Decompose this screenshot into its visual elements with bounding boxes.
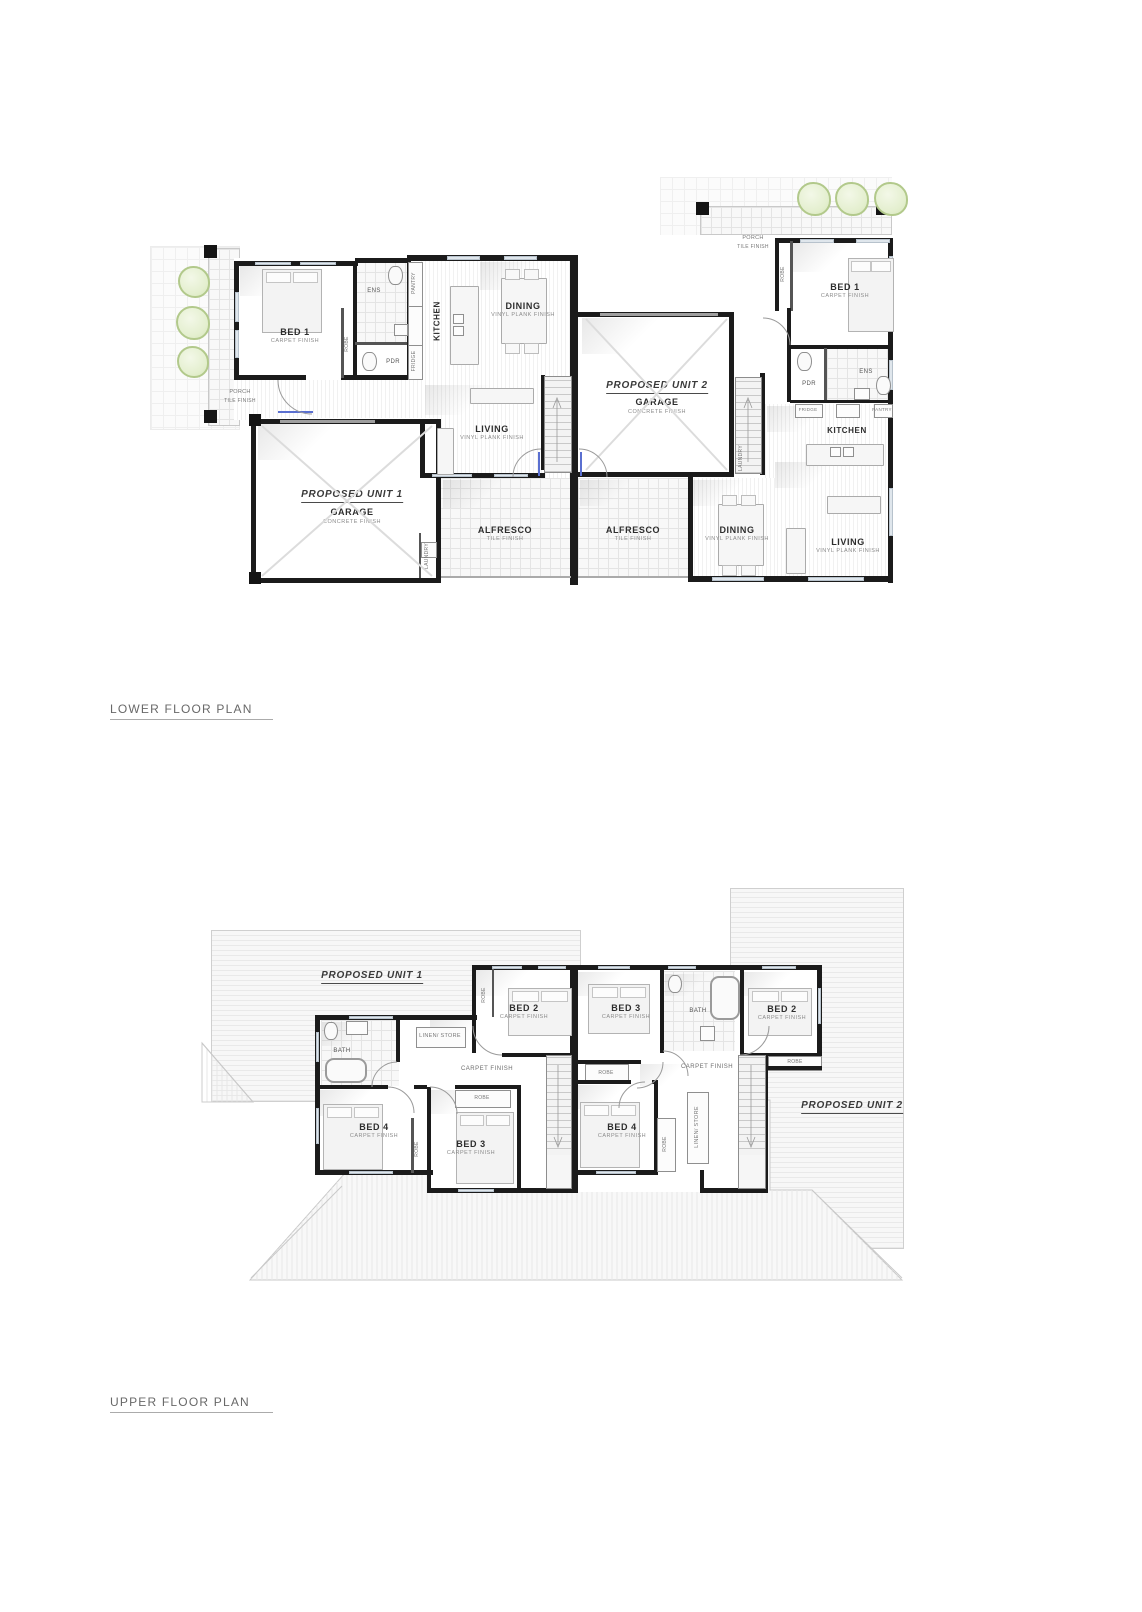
- window-marker: [349, 1171, 393, 1174]
- window-marker: [538, 966, 566, 969]
- robe-label-u1-bed4: ROBE: [414, 1141, 420, 1156]
- basin-icon: [700, 1026, 715, 1041]
- wall: [396, 1018, 400, 1062]
- window-marker: [316, 1032, 319, 1062]
- wall: [660, 969, 664, 1053]
- toilet-icon: [324, 1022, 338, 1040]
- wall: [472, 1017, 476, 1053]
- robe-label-u2-bed4: ROBE: [662, 1136, 668, 1151]
- wall: [700, 1170, 704, 1192]
- stairs: [738, 1055, 766, 1157]
- window-marker: [668, 966, 696, 969]
- upper-plan-title: UPPER FLOOR PLAN: [110, 1395, 250, 1409]
- wall: [472, 965, 476, 1020]
- wall: [318, 1085, 388, 1089]
- window-marker: [458, 1189, 494, 1192]
- finish-label-bed3-u2: CARPET FINISH: [602, 1014, 650, 1020]
- robe-label-u2-hall: ROBE: [598, 1070, 613, 1076]
- finish-label-bed4-u1: CARPET FINISH: [350, 1133, 398, 1139]
- stair-landing: [738, 1155, 766, 1189]
- bathtub-icon: [325, 1058, 367, 1083]
- wall: [740, 969, 744, 1057]
- room-label-bed4-u1: BED 4: [359, 1122, 389, 1132]
- wall: [455, 1085, 521, 1089]
- linen-label-u2: LINEN/ STORE: [694, 1106, 700, 1148]
- robe-label-u1-bed2: ROBE: [481, 987, 487, 1002]
- hall-finish-label-u1: CARPET FINISH: [461, 1066, 513, 1072]
- window-marker: [316, 1108, 319, 1144]
- floor-plan-sheet: BED 1 CARPET FINISH ENS PDR ROBE PANTRY …: [0, 0, 1142, 1612]
- robe-label-u1-bed3: ROBE: [474, 1095, 489, 1101]
- window-marker: [818, 988, 821, 1024]
- wall: [766, 1066, 822, 1070]
- upper-floor-plan: PROPOSED UNIT 1 BED 2 CARPET FINISH BATH…: [0, 0, 1142, 1612]
- finish-label-bed2-u1: CARPET FINISH: [500, 1014, 548, 1020]
- room-label-bed3-u1: BED 3: [456, 1139, 486, 1149]
- toilet-icon: [668, 975, 682, 993]
- room-label-bed2-u2: BED 2: [767, 1004, 797, 1014]
- unit-label-u1-upper: PROPOSED UNIT 1: [321, 970, 423, 984]
- finish-label-bed3-u1: CARPET FINISH: [447, 1150, 495, 1156]
- wall: [492, 969, 494, 1017]
- wall: [427, 1087, 431, 1192]
- room-label-bath-u1: BATH: [333, 1048, 350, 1054]
- wall: [575, 1080, 631, 1084]
- wall: [517, 1087, 521, 1192]
- room-label-bed2-u1: BED 2: [509, 1003, 539, 1013]
- window-marker: [349, 1016, 393, 1019]
- wall: [414, 1085, 427, 1089]
- bathtub-icon: [710, 976, 740, 1020]
- finish-label-bed2-u2: CARPET FINISH: [758, 1015, 806, 1021]
- room-label-bed3-u2: BED 3: [611, 1003, 641, 1013]
- room-label-bath-u2: BATH: [689, 1008, 706, 1014]
- stairs: [546, 1055, 572, 1157]
- window-marker: [596, 1171, 636, 1174]
- finish-label-bed4-u2: CARPET FINISH: [598, 1133, 646, 1139]
- room-label-bed4-u2: BED 4: [607, 1122, 637, 1132]
- room-label-linen-u1: LINEN/ STORE: [419, 1033, 461, 1039]
- stair-landing: [546, 1155, 572, 1189]
- unit-label-u2-upper: PROPOSED UNIT 2: [801, 1100, 903, 1114]
- hall-finish-label-u2: CARPET FINISH: [681, 1064, 733, 1070]
- window-marker: [598, 966, 630, 969]
- title-rule: [110, 1412, 273, 1413]
- window-marker: [492, 966, 522, 969]
- basin-icon: [346, 1021, 368, 1035]
- window-marker: [762, 966, 796, 969]
- robe-label-u2-bed2: ROBE: [787, 1059, 802, 1065]
